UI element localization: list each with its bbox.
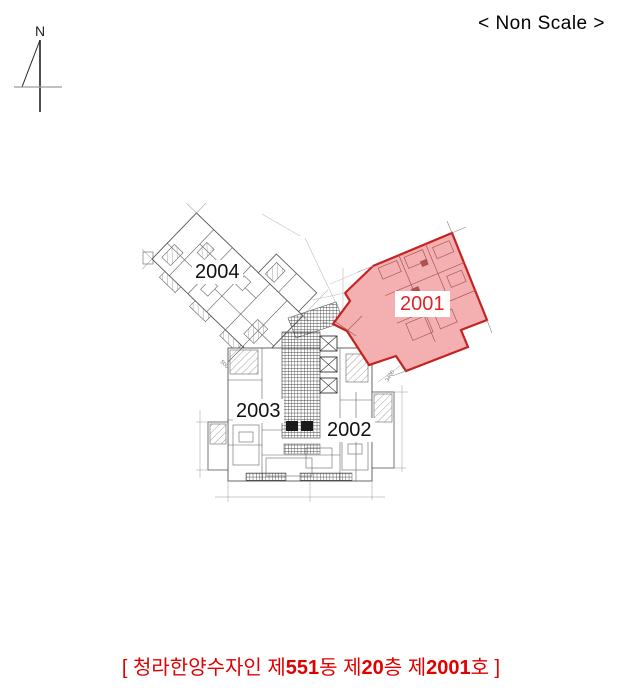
- scale-note: < Non Scale >: [478, 13, 605, 35]
- unit-label-2004: 2004: [192, 260, 243, 284]
- caption-segment: 동 제: [319, 657, 361, 679]
- dim-label: 3400: [385, 369, 397, 383]
- north-arrow: N: [14, 23, 62, 112]
- caption-segment: 2001: [426, 657, 471, 679]
- caption-segment: 층 제: [384, 657, 426, 679]
- unit-label-2001: 2001: [395, 291, 450, 317]
- caption-segment: 20: [361, 657, 383, 679]
- unit-label-2002: 2002: [324, 418, 375, 442]
- building-caption: [ 청라한양수자인 제551동 제20층 제2001호 ]: [0, 651, 622, 680]
- floor-plan-page: N: [0, 0, 622, 700]
- caption-segment: [ 청라한양수자인 제: [122, 657, 286, 679]
- caption-segment: 551: [286, 657, 319, 679]
- caption-segment: 호 ]: [471, 657, 501, 679]
- floor-plan-drawing: N: [0, 0, 622, 700]
- north-label: N: [35, 23, 45, 39]
- unit-label-2003: 2003: [233, 399, 284, 423]
